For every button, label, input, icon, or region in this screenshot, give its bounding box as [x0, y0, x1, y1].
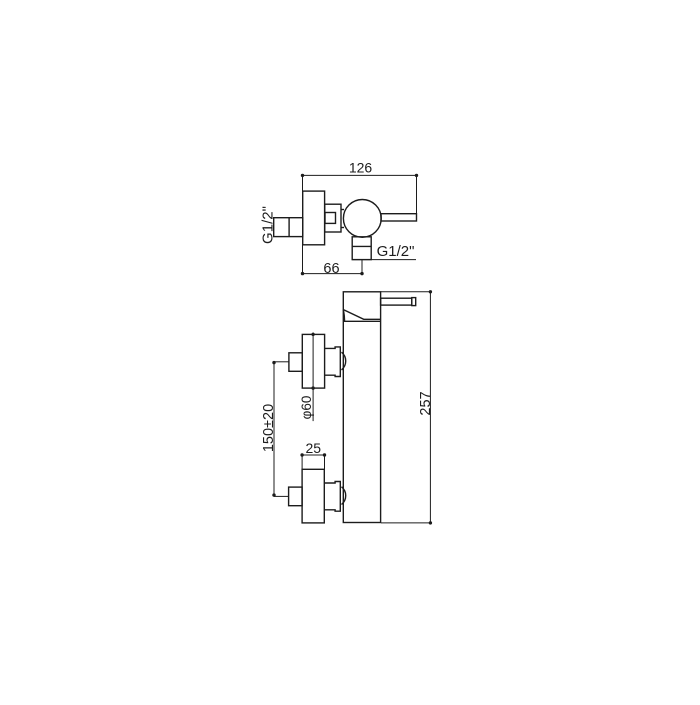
svg-text:G1/2": G1/2"	[259, 206, 276, 244]
svg-text:150±20: 150±20	[261, 404, 277, 452]
svg-text:126: 126	[349, 160, 373, 176]
svg-text:66: 66	[323, 261, 339, 277]
svg-text:257: 257	[418, 391, 434, 415]
svg-text:φ60: φ60	[299, 396, 314, 420]
svg-text:G1/2": G1/2"	[377, 243, 415, 260]
svg-text:25: 25	[306, 440, 322, 456]
